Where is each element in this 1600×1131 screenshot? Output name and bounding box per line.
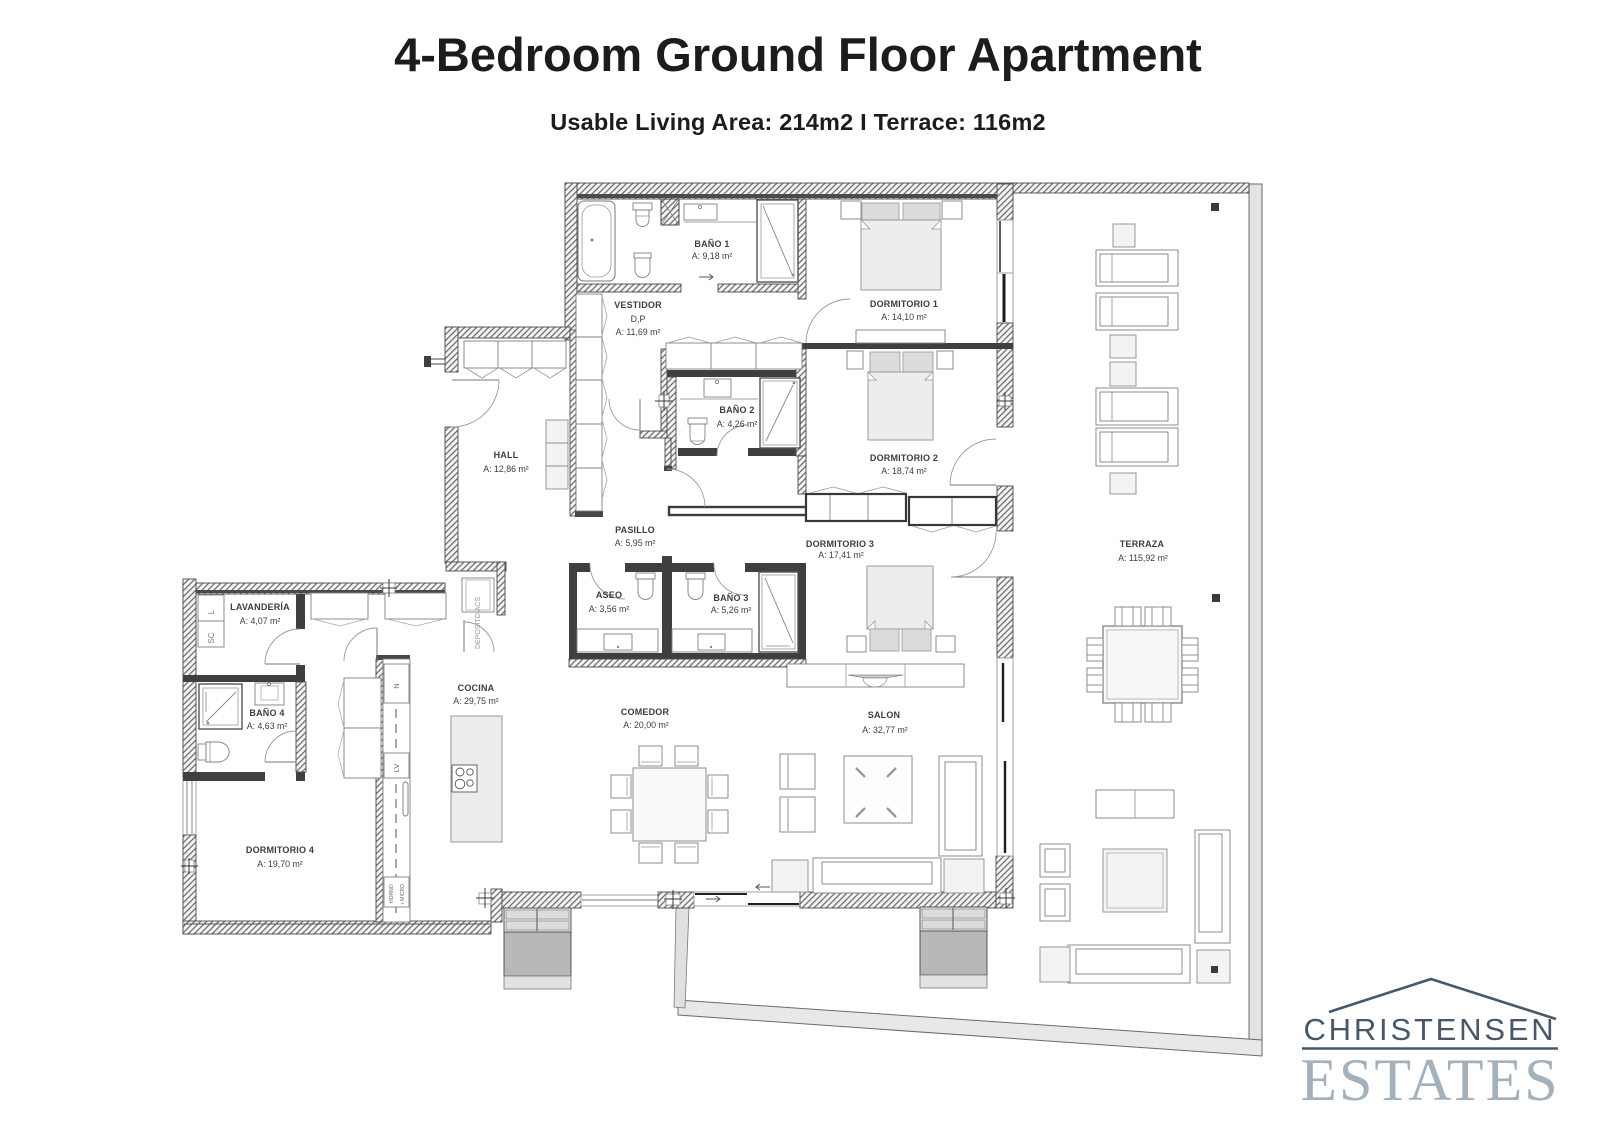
svg-text:N: N (392, 683, 401, 688)
svg-text:DEPOSITO ACS: DEPOSITO ACS (475, 597, 482, 649)
svg-text:CHRISTENSEN: CHRISTENSEN (1304, 1012, 1557, 1047)
svg-text:LV: LV (392, 764, 401, 773)
svg-text:COMEDOR: COMEDOR (621, 707, 670, 717)
svg-text:SC: SC (207, 632, 216, 643)
svg-text:A: 4,26 m²: A: 4,26 m² (717, 419, 758, 429)
svg-text:A: 4,63 m²: A: 4,63 m² (247, 721, 288, 731)
svg-text:ASEO: ASEO (596, 590, 622, 600)
svg-text:HORNO: HORNO (389, 884, 395, 903)
svg-text:A: 12,86 m²: A: 12,86 m² (483, 464, 529, 474)
svg-text:LAVANDERÍA: LAVANDERÍA (230, 602, 290, 612)
svg-text:A: 29,75 m²: A: 29,75 m² (453, 696, 499, 706)
svg-text:BAÑO 2: BAÑO 2 (719, 405, 754, 415)
svg-text:A: 14,10 m²: A: 14,10 m² (881, 312, 927, 322)
svg-text:A: 19,70 m²: A: 19,70 m² (257, 859, 303, 869)
svg-text:D,P: D,P (631, 314, 646, 324)
svg-text:TERRAZA: TERRAZA (1120, 539, 1165, 549)
svg-text:A: 5,26 m²: A: 5,26 m² (711, 605, 752, 615)
svg-text:L: L (207, 609, 216, 614)
svg-text:BAÑO 1: BAÑO 1 (694, 239, 729, 249)
svg-text:COCINA: COCINA (458, 683, 495, 693)
svg-text:A: 32,77 m²: A: 32,77 m² (862, 725, 908, 735)
svg-text:PASILLO: PASILLO (615, 525, 655, 535)
svg-text:DORMITORIO 1: DORMITORIO 1 (870, 299, 938, 309)
svg-text:DORMITORIO 4: DORMITORIO 4 (246, 845, 314, 855)
svg-text:ESTATES: ESTATES (1300, 1047, 1559, 1113)
svg-text:A: 5,95 m²: A: 5,95 m² (615, 538, 656, 548)
svg-text:A: 4,07 m²: A: 4,07 m² (240, 616, 281, 626)
svg-text:A: 11,69 m²: A: 11,69 m² (616, 327, 661, 337)
svg-text:VESTIDOR: VESTIDOR (614, 300, 662, 310)
svg-text:HALL: HALL (494, 450, 519, 460)
svg-text:A: 18,74 m²: A: 18,74 m² (881, 466, 927, 476)
svg-text:DORMITORIO 2: DORMITORIO 2 (870, 453, 938, 463)
svg-text:A: 9,18 m²: A: 9,18 m² (692, 251, 733, 261)
svg-text:A: 115,92 m²: A: 115,92 m² (1118, 553, 1168, 563)
svg-text:+ MICRO: + MICRO (400, 884, 406, 905)
svg-text:BAÑO 4: BAÑO 4 (249, 708, 284, 718)
svg-text:A: 20,00 m²: A: 20,00 m² (623, 720, 669, 730)
svg-text:DORMITORIO 3: DORMITORIO 3 (806, 539, 874, 549)
svg-text:A: 17,41 m²: A: 17,41 m² (818, 550, 864, 560)
svg-text:A: 3,56 m²: A: 3,56 m² (589, 604, 630, 614)
svg-text:BAÑO 3: BAÑO 3 (713, 593, 748, 603)
svg-text:SALON: SALON (868, 710, 901, 720)
